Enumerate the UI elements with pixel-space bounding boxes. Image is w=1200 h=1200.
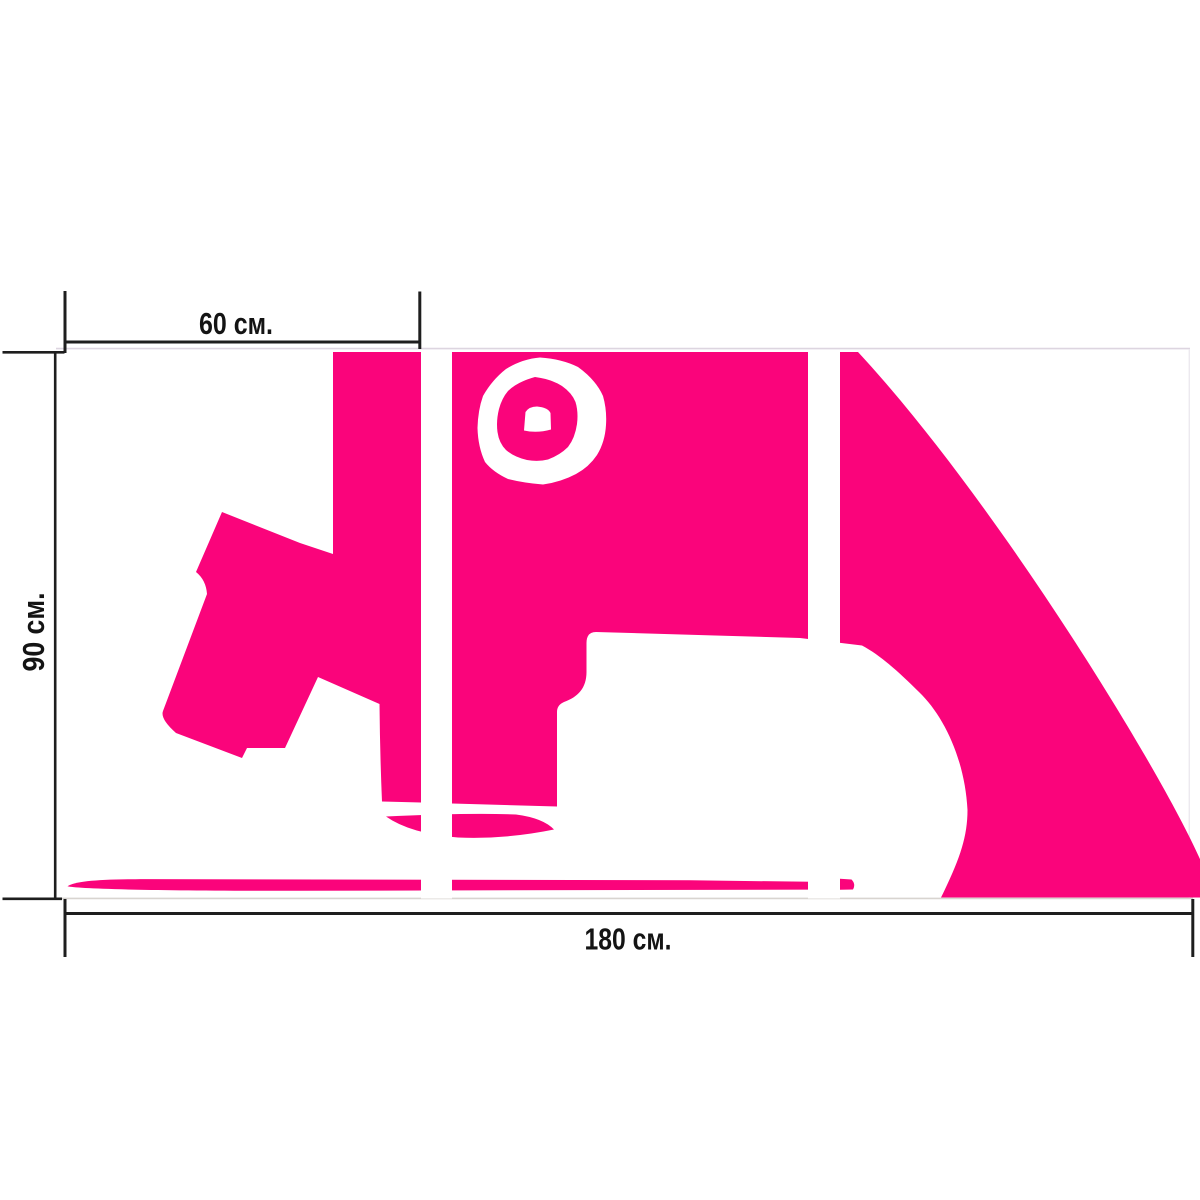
svg-text:180 см.: 180 см. (585, 922, 672, 957)
svg-text:60 см.: 60 см. (199, 306, 273, 341)
svg-text:90 см.: 90 см. (16, 593, 51, 672)
